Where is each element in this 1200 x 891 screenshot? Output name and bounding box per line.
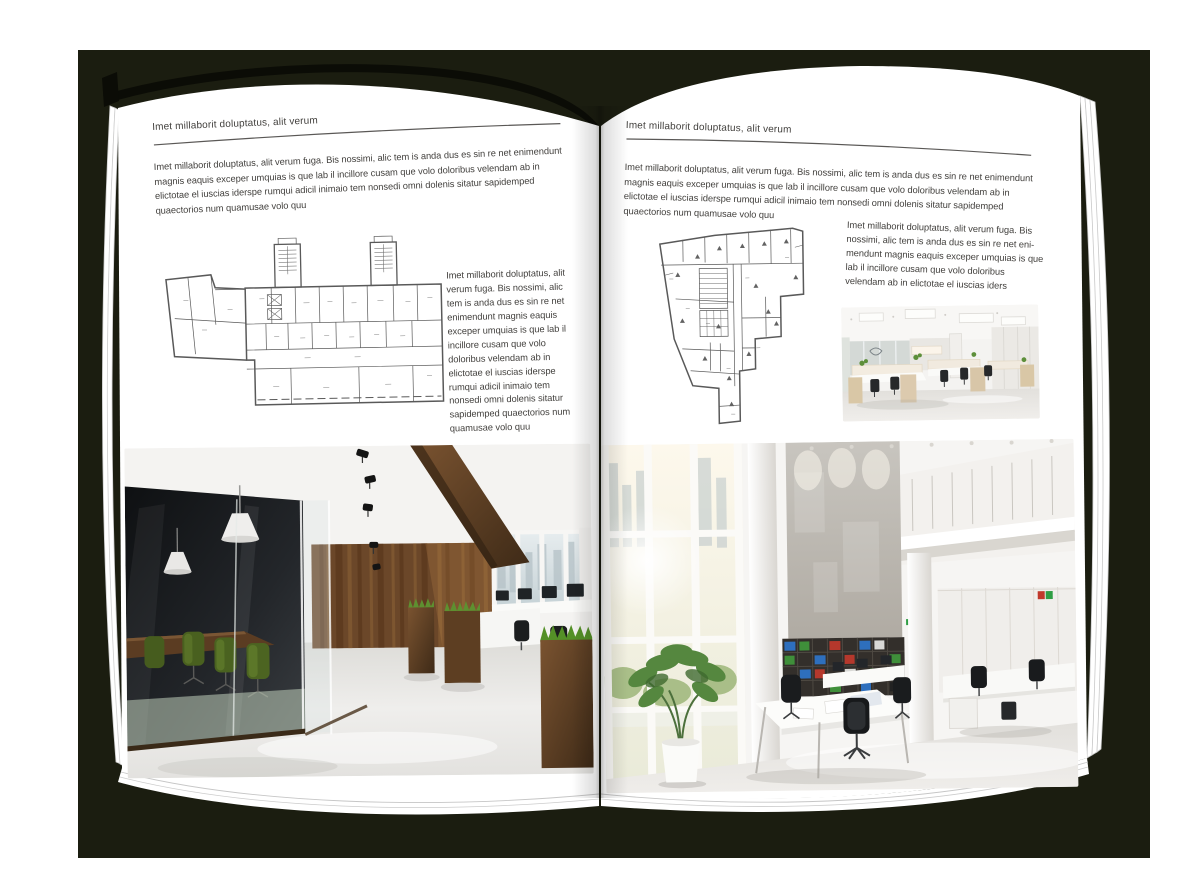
office-photo-openspace-small <box>841 304 1040 421</box>
right-page: Imet millaborit doluptatus, alit verum I… <box>602 72 1090 784</box>
intro-paragraph: Imet millaborit doluptatus, alit verum f… <box>154 143 576 219</box>
right-header-block: Imet millaborit doluptatus, alit verum I… <box>623 120 1042 230</box>
office-photo-loft <box>124 444 593 779</box>
side-paragraph: Imet millaborit doluptatus, alit verum f… <box>446 267 572 437</box>
left-page: Imet millaborit doluptatus, alit verum I… <box>118 78 602 778</box>
concrete-wall <box>786 441 903 639</box>
floor-plan-right <box>644 217 843 437</box>
glass-meeting-room <box>125 485 306 752</box>
office-photo-atrium <box>602 439 1079 794</box>
left-header-block: Imet millaborit doluptatus, alit verum I… <box>152 105 576 219</box>
cover-corner <box>102 72 119 107</box>
side-paragraph: Imet millaborit doluptatus, alit verum f… <box>845 219 1045 295</box>
floor-plan-left <box>152 225 448 432</box>
column <box>907 553 934 745</box>
